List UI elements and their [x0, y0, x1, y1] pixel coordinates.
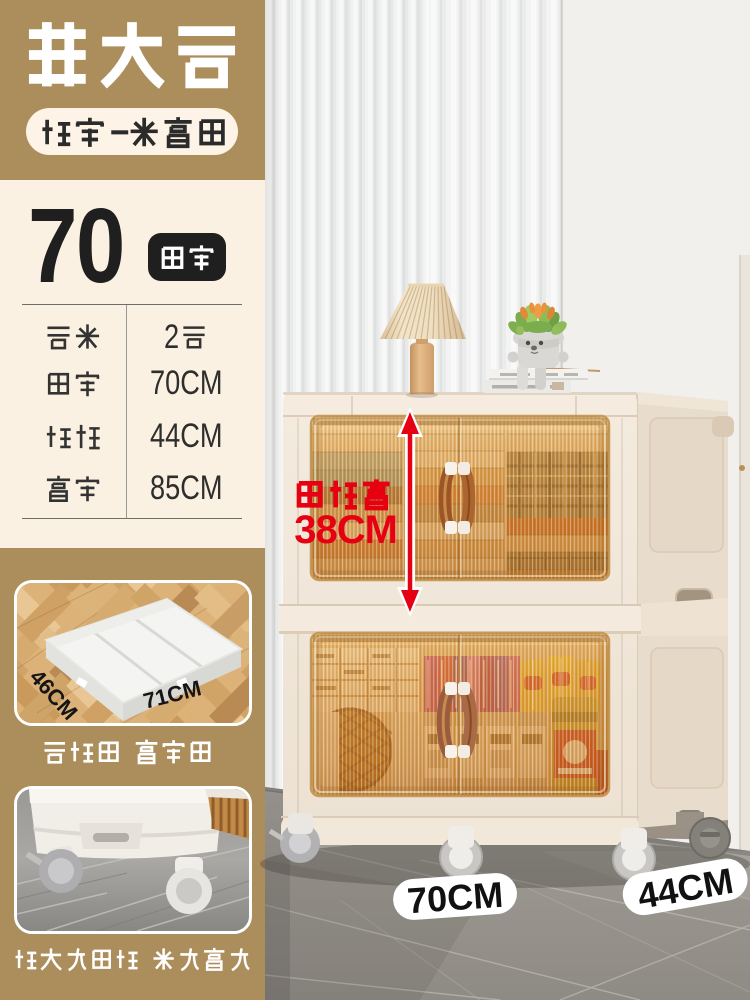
svg-text:70CM: 70CM — [406, 874, 505, 922]
svg-text:38CM: 38CM — [294, 508, 397, 552]
